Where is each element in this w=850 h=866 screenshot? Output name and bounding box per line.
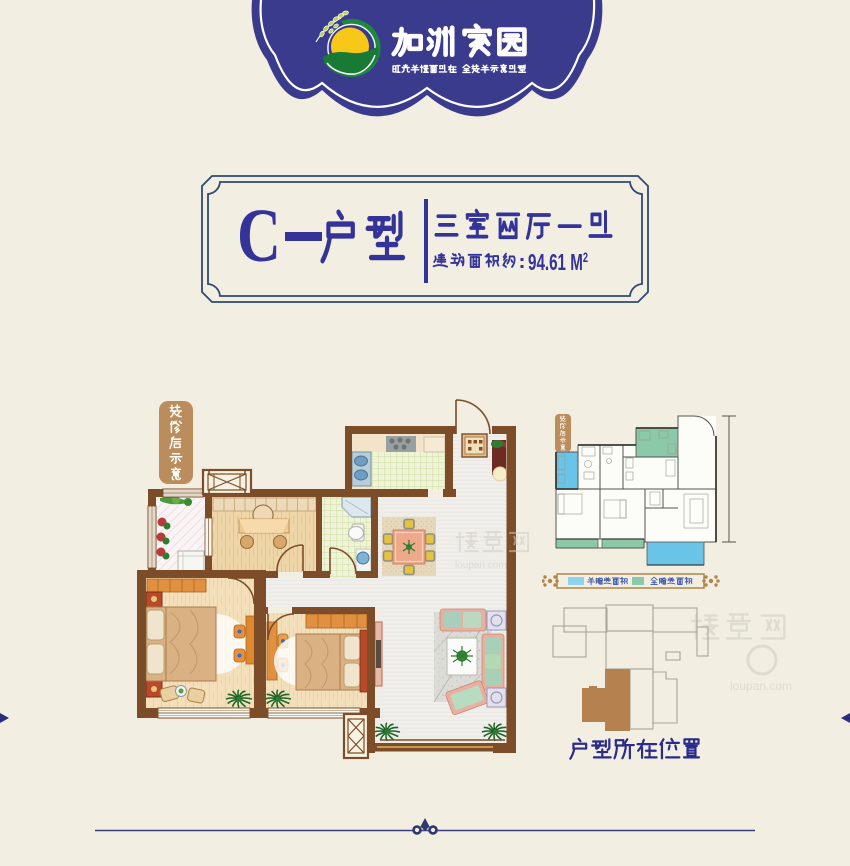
svg-text:loupan.com: loupan.com xyxy=(455,560,507,571)
